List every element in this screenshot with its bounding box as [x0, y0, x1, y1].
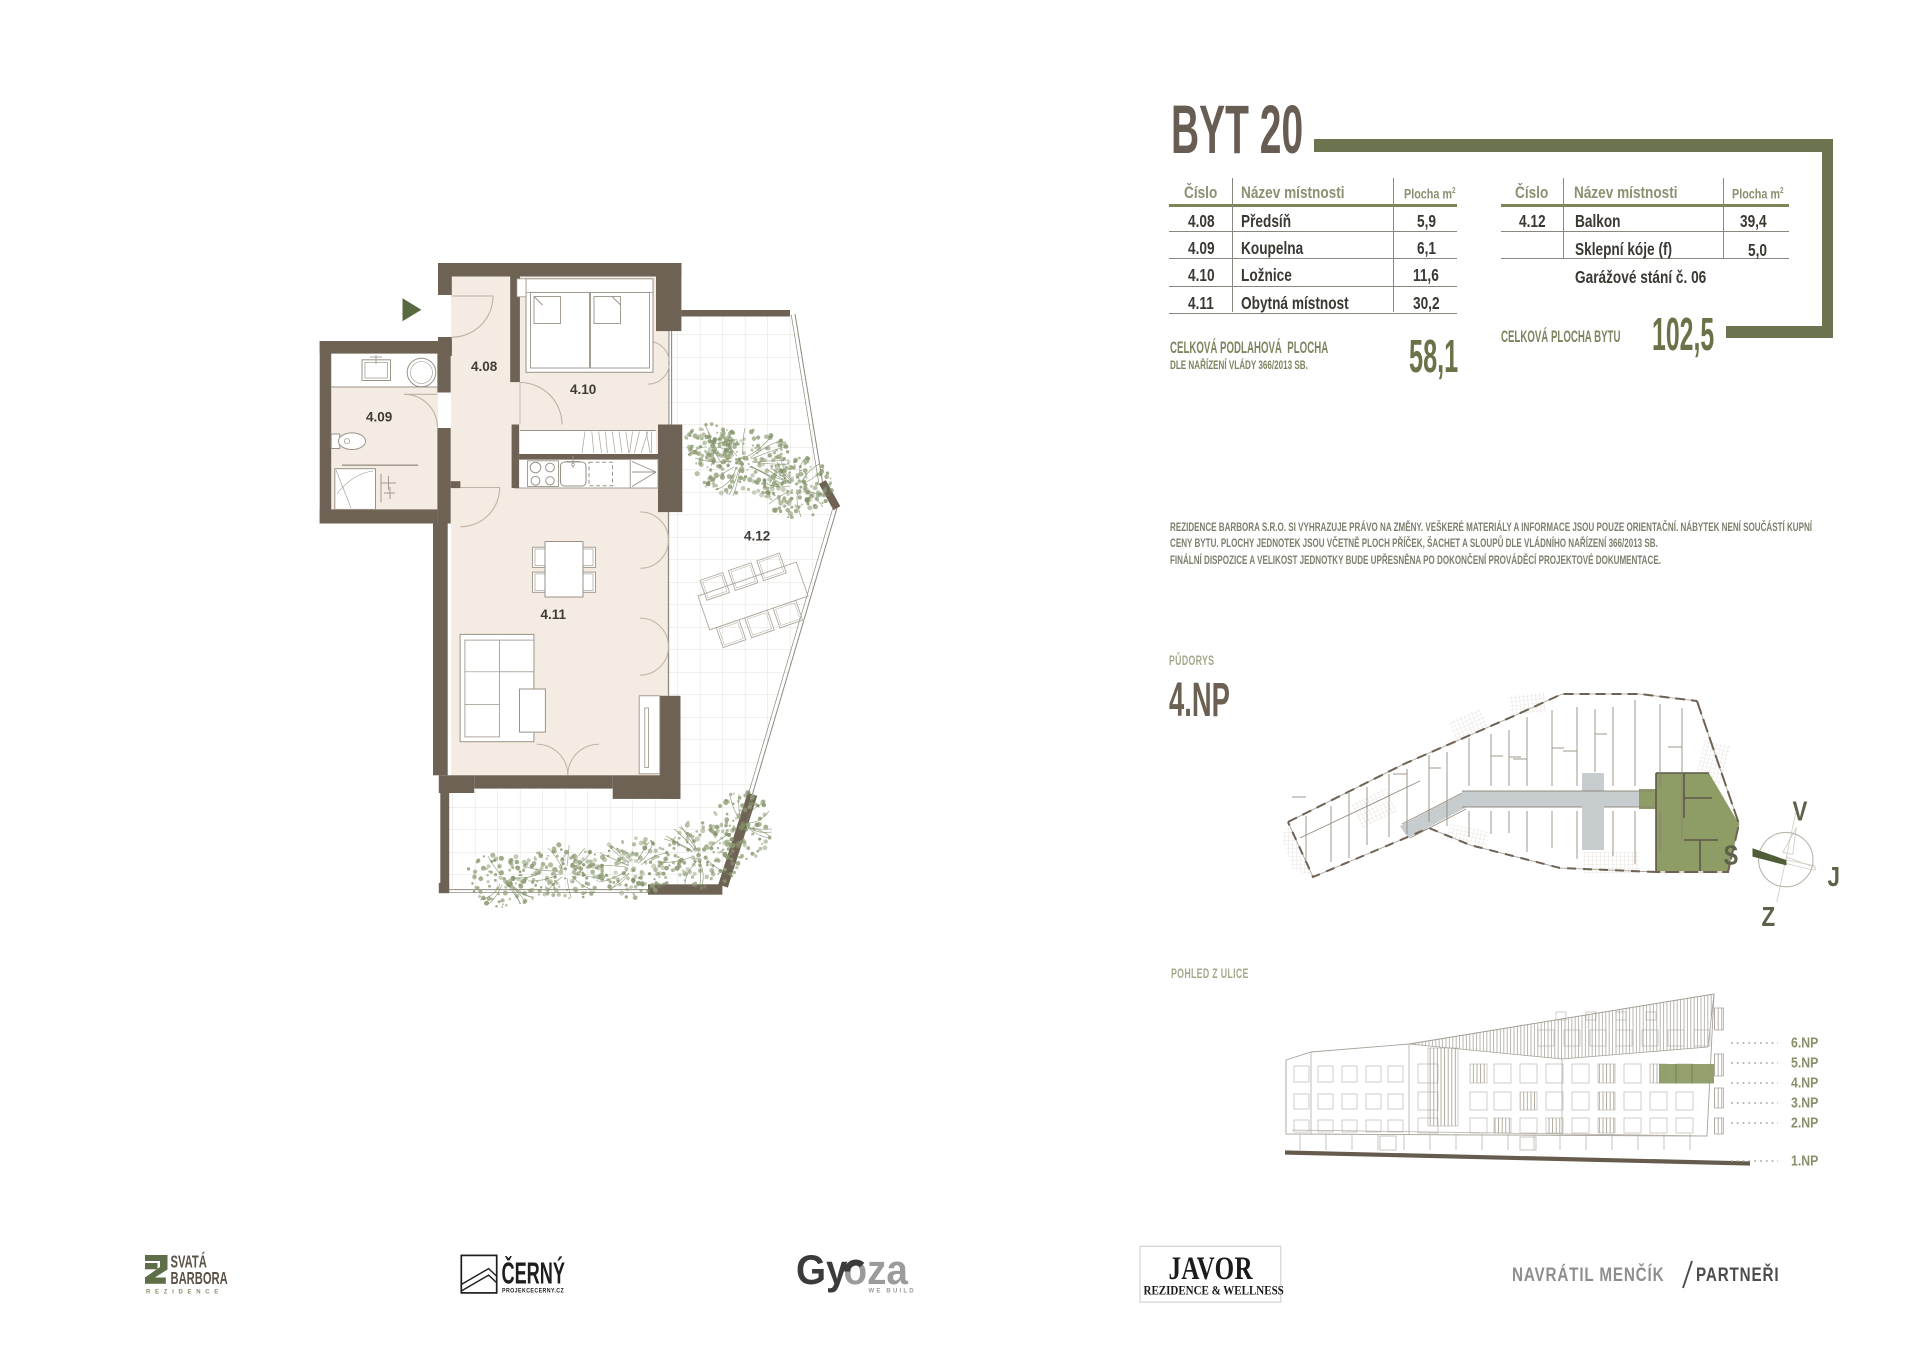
svg-text:WE BUILD: WE BUILD: [869, 1289, 916, 1295]
svg-text:3.NP: 3.NP: [1791, 1094, 1818, 1110]
svg-text:4.10: 4.10: [570, 382, 596, 397]
svg-text:1.NP: 1.NP: [1791, 1152, 1818, 1168]
svg-text:4.08: 4.08: [471, 359, 498, 374]
svg-text:S: S: [1724, 840, 1739, 871]
svg-text:V: V: [1793, 796, 1808, 827]
svg-text:ČERNÝ: ČERNÝ: [502, 1254, 565, 1291]
svg-text:5.NP: 5.NP: [1791, 1054, 1818, 1070]
svg-text:BARBORA: BARBORA: [171, 1270, 229, 1289]
svg-text:2.NP: 2.NP: [1791, 1114, 1818, 1130]
svg-text:oza: oza: [844, 1245, 909, 1293]
svg-text:NAVRÁTIL MENČÍK: NAVRÁTIL MENČÍK: [1512, 1262, 1664, 1285]
svg-text:4.11: 4.11: [541, 607, 567, 622]
svg-text:Gy: Gy: [796, 1245, 848, 1293]
svg-text:4.12: 4.12: [744, 529, 770, 544]
svg-text:4.NP: 4.NP: [1791, 1074, 1818, 1090]
svg-text:JAVOR: JAVOR: [1169, 1251, 1254, 1287]
svg-text:J: J: [1828, 862, 1840, 893]
svg-text:Z: Z: [1762, 902, 1776, 933]
svg-text:REZIDENCE: REZIDENCE: [146, 1290, 223, 1296]
svg-text:REZIDENCE & WELLNESS: REZIDENCE & WELLNESS: [1144, 1284, 1285, 1298]
svg-text:PARTNEŘI: PARTNEŘI: [1696, 1262, 1779, 1285]
svg-text:4.09: 4.09: [366, 410, 392, 425]
svg-text:6.NP: 6.NP: [1791, 1034, 1818, 1050]
svg-text:PROJEKCECERNY.CZ: PROJEKCECERNY.CZ: [502, 1288, 564, 1294]
